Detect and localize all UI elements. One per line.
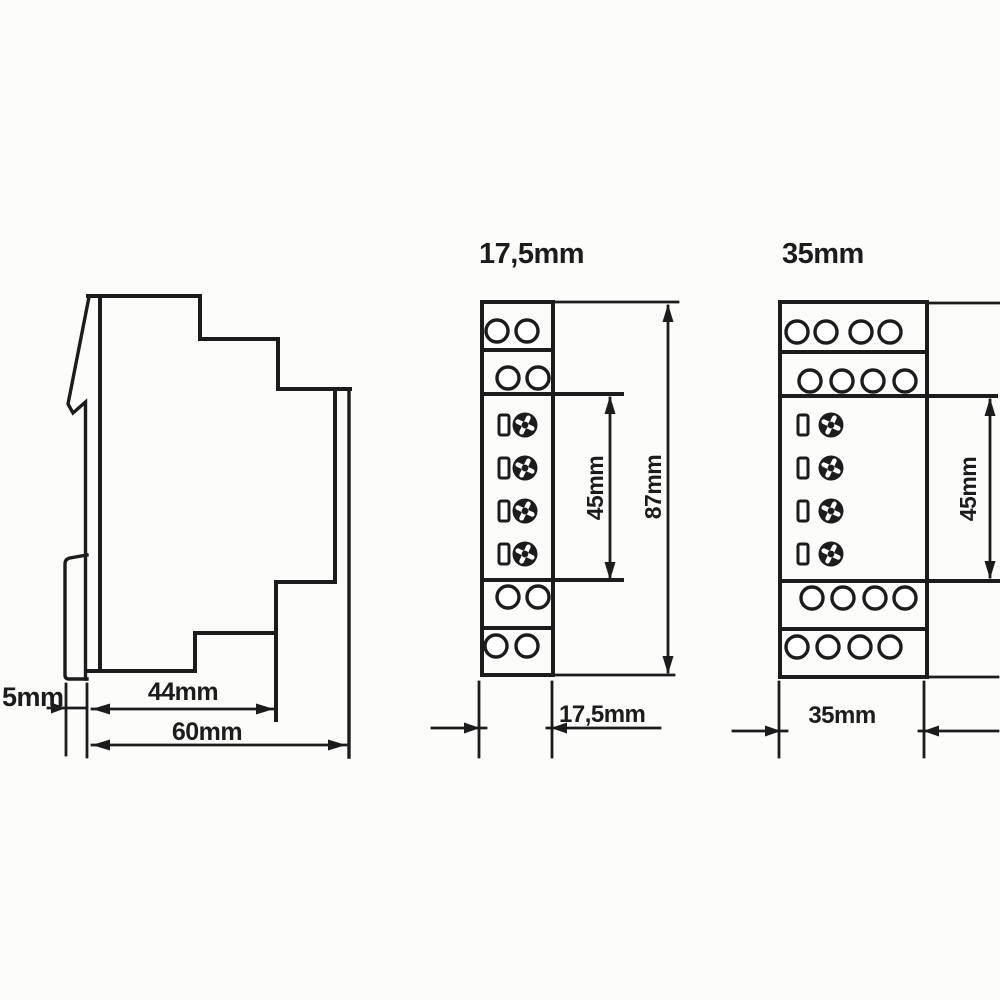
- screw-head-icon: [814, 537, 847, 570]
- dim-label-17-5mm-width: 17,5mm: [559, 703, 645, 727]
- terminal-hole: [497, 367, 519, 389]
- indicator-slot: [499, 415, 509, 435]
- din-clip-upper: [68, 297, 89, 679]
- front-row: [798, 408, 848, 441]
- terminal-hole: [786, 321, 808, 343]
- dim-label-45mm-mid: 45mm: [584, 453, 608, 523]
- terminal-hole: [879, 321, 901, 343]
- terminal-hole: [801, 587, 823, 609]
- terminal-hole: [786, 636, 808, 658]
- terminal-hole: [850, 321, 872, 343]
- terminal-hole: [817, 636, 839, 658]
- indicator-slot: [798, 458, 808, 478]
- front-row: [499, 537, 542, 570]
- module-17-5-outline: [482, 302, 553, 675]
- front-row: [798, 537, 848, 570]
- terminal-hole: [879, 636, 901, 658]
- indicator-slot: [798, 415, 808, 435]
- indicator-slot: [798, 544, 808, 564]
- screw-head-icon: [814, 494, 847, 527]
- terminal-hole: [527, 586, 549, 608]
- terminal-hole: [527, 367, 549, 389]
- module-35-outline: [780, 302, 927, 677]
- terminal-hole: [894, 587, 916, 609]
- front-row: [499, 494, 542, 527]
- dim-label-45mm-right: 45mm: [957, 454, 981, 524]
- dim-label-60mm: 60mm: [162, 720, 252, 745]
- front-row: [798, 494, 848, 527]
- indicator-slot: [499, 501, 509, 521]
- front-row: [798, 451, 848, 484]
- terminal-hole: [815, 321, 837, 343]
- terminal-hole: [485, 635, 507, 657]
- module-17-5-front-view: [432, 302, 678, 757]
- screw-head-icon: [814, 408, 847, 441]
- side-bottom-steps: [87, 633, 276, 671]
- screw-head-icon: [508, 408, 541, 441]
- front-row: [499, 451, 542, 484]
- terminal-hole: [849, 636, 871, 658]
- terminal-hole: [864, 587, 886, 609]
- screw-head-icon: [508, 494, 541, 527]
- terminal-hole: [894, 370, 916, 392]
- dimension-drawing: 17,5mm 35mm 5mm 44mm 60mm 17,5mm 35mm 45…: [0, 0, 1000, 1000]
- terminal-hole: [486, 320, 508, 342]
- dim-label-35mm-width: 35mm: [806, 704, 878, 728]
- terminal-hole: [516, 320, 538, 342]
- module-35-front-view: [733, 302, 1000, 757]
- dim-label-44mm: 44mm: [138, 680, 228, 705]
- screw-head-icon: [814, 451, 847, 484]
- din-clip-lower-arm: [65, 555, 87, 679]
- screw-head-icon: [508, 537, 541, 570]
- indicator-slot: [499, 458, 509, 478]
- module-35-title: 35mm: [782, 240, 864, 269]
- terminal-hole: [831, 370, 853, 392]
- dimension-45mm-right: [985, 398, 996, 579]
- terminal-hole: [497, 586, 519, 608]
- drawing-linework: [0, 0, 1000, 1000]
- indicator-slot: [499, 544, 509, 564]
- module-17-5-title: 17,5mm: [479, 240, 584, 269]
- side-front-inner-step: [276, 390, 335, 720]
- front-row: [499, 408, 542, 441]
- side-top-profile: [88, 296, 350, 389]
- dim-label-87mm: 87mm: [642, 452, 666, 522]
- terminal-hole: [832, 587, 854, 609]
- dim-label-5mm: 5mm: [2, 684, 64, 711]
- terminal-hole: [516, 635, 538, 657]
- indicator-slot: [798, 501, 808, 521]
- terminal-hole: [799, 370, 821, 392]
- screw-head-icon: [508, 451, 541, 484]
- terminal-hole: [862, 370, 884, 392]
